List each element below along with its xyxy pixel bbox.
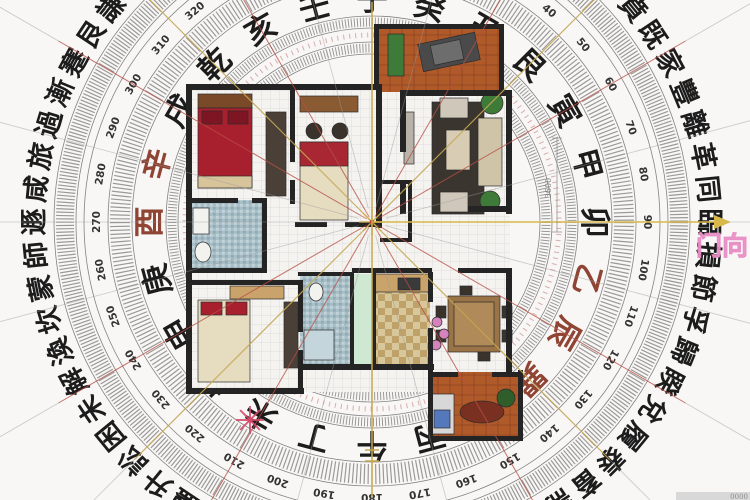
- degree-label: 140: [537, 421, 562, 444]
- furn-sofa-top: [440, 98, 468, 118]
- red-star-center: [248, 418, 253, 423]
- wall: [295, 222, 327, 227]
- wall: [428, 272, 433, 302]
- furn-chair: [460, 286, 472, 295]
- wall: [518, 370, 523, 440]
- hexagram-char: 節: [684, 271, 721, 304]
- degree-label: 280: [93, 162, 109, 186]
- wall: [506, 268, 512, 374]
- wall: [380, 238, 412, 242]
- degree-label: 170: [408, 485, 432, 500]
- hexagram-char: 同: [690, 174, 723, 204]
- wall: [350, 272, 354, 368]
- degree-label: 250: [104, 304, 123, 329]
- door-direction-label: 门向: [696, 231, 748, 262]
- hexagram-char: 渙: [41, 332, 80, 370]
- hexagram-char: 歸: [664, 332, 704, 369]
- dimension-label: 3600: [544, 178, 553, 198]
- degree-label: 100: [635, 258, 651, 282]
- degree-label: 50: [574, 36, 593, 55]
- hexagram-char: 過: [31, 106, 69, 142]
- hexagram-char: 坎: [31, 302, 69, 337]
- degree-label: 290: [104, 116, 123, 141]
- furn-flowers-pink: [439, 329, 449, 339]
- wall: [290, 84, 295, 162]
- furn-pillow: [201, 302, 222, 315]
- wall: [298, 280, 303, 332]
- wall: [400, 90, 512, 96]
- hexagram-char: 師: [20, 240, 53, 270]
- wall: [468, 206, 512, 212]
- screenshot-root: 0102030405060708090100110120130140150160…: [0, 0, 750, 500]
- wall: [428, 328, 433, 368]
- furn-sofa-long: [478, 118, 502, 186]
- wall: [458, 268, 510, 273]
- hexagram-char: 旅: [23, 140, 60, 173]
- hexagram-char: 豐: [664, 75, 703, 112]
- degree-label: 260: [93, 258, 109, 282]
- degree-label: 320: [183, 0, 208, 23]
- luopan-floorplan-diagram: 0102030405060708090100110120130140150160…: [0, 0, 750, 500]
- degree-label: 220: [183, 421, 208, 444]
- furn-bed-red-throw: [300, 142, 348, 166]
- degree-label: 160: [454, 471, 479, 490]
- wall: [298, 272, 354, 276]
- wall: [262, 198, 267, 272]
- wall: [506, 90, 512, 214]
- furn-pillow: [228, 111, 248, 124]
- furn-plant-pot: [388, 34, 404, 76]
- degree-label: 190: [312, 485, 336, 500]
- wall: [499, 24, 504, 94]
- mountain-char: 壬: [295, 0, 334, 29]
- furn-headboard: [198, 94, 252, 108]
- hexagram-char: 蒙: [24, 271, 60, 304]
- furn-wardrobe: [284, 302, 298, 368]
- watermark: 0000: [676, 492, 750, 500]
- furn-plant: [497, 389, 515, 407]
- hexagram-char: 離: [676, 107, 714, 142]
- wall: [374, 24, 379, 90]
- degree-label: 200: [266, 471, 291, 490]
- wall: [298, 364, 434, 370]
- degree-label: 80: [636, 166, 650, 182]
- room-passage-green: [352, 274, 374, 368]
- hexagram-char: 革: [684, 140, 720, 173]
- furn-shower: [304, 330, 334, 360]
- wall: [186, 84, 382, 90]
- furn-washer-door: [434, 410, 450, 428]
- degree-label: 310: [150, 33, 173, 58]
- furn-chair: [436, 306, 446, 318]
- degree-label: 130: [571, 387, 594, 412]
- furn-stove: [398, 278, 420, 290]
- wall: [298, 350, 303, 388]
- wall: [186, 84, 192, 394]
- wall: [428, 372, 458, 377]
- furn-desk: [300, 96, 358, 112]
- wall: [186, 280, 303, 285]
- hexagram-char: 漸: [41, 75, 80, 112]
- furn-toilet: [309, 283, 323, 301]
- hexagram-char: 孚: [676, 302, 714, 337]
- watermark-text: 0000: [730, 493, 748, 500]
- furn-wardrobe: [266, 112, 286, 196]
- furn-sink: [193, 208, 209, 234]
- furn-flowers-pink: [432, 317, 442, 327]
- degree-label: 110: [621, 304, 640, 329]
- hexagram-char: 咸: [20, 174, 53, 204]
- furn-sofa-bottom: [440, 192, 468, 212]
- degree-label: 70: [622, 119, 638, 137]
- degree-label: 40: [539, 2, 558, 21]
- wall: [492, 372, 523, 377]
- wall: [186, 198, 238, 203]
- furn-stool: [332, 123, 348, 139]
- wall: [428, 436, 523, 441]
- furn-chair: [478, 352, 490, 361]
- furn-pillow: [202, 111, 222, 124]
- furn-toilet: [195, 242, 211, 262]
- degree-label: 230: [150, 387, 173, 412]
- wall: [428, 370, 433, 440]
